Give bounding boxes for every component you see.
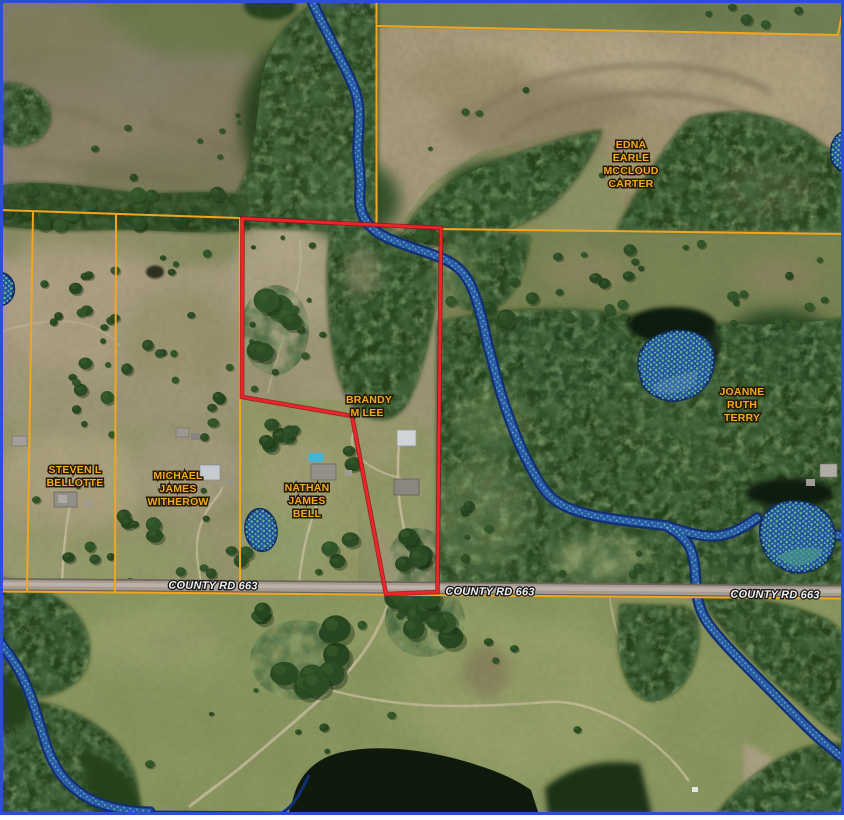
svg-text:BELLOTTE: BELLOTTE [46,477,103,489]
svg-text:JAMES: JAMES [288,495,325,507]
svg-text:JAMES: JAMES [159,483,196,495]
svg-text:TERRY: TERRY [724,412,760,424]
svg-text:CARTER: CARTER [609,178,654,190]
svg-text:NATHAN: NATHAN [285,482,330,494]
svg-text:COUNTY RD 663: COUNTY RD 663 [445,586,534,599]
svg-text:EDNA: EDNA [616,139,647,151]
svg-text:MICHAEL: MICHAEL [153,470,203,482]
svg-text:JOANNE: JOANNE [720,386,765,398]
svg-text:STEVEN L: STEVEN L [49,464,102,476]
svg-text:M LEE: M LEE [350,407,383,419]
svg-text:COUNTY RD 663: COUNTY RD 663 [168,580,257,593]
svg-text:WITHEROW: WITHEROW [147,496,208,508]
svg-text:EARLE: EARLE [613,152,650,164]
svg-text:COUNTY RD 663: COUNTY RD 663 [730,589,819,602]
svg-text:BRANDY: BRANDY [346,394,392,406]
svg-text:RUTH: RUTH [727,399,757,411]
svg-text:MCCLOUD: MCCLOUD [603,165,658,177]
svg-text:BELL: BELL [293,508,322,520]
